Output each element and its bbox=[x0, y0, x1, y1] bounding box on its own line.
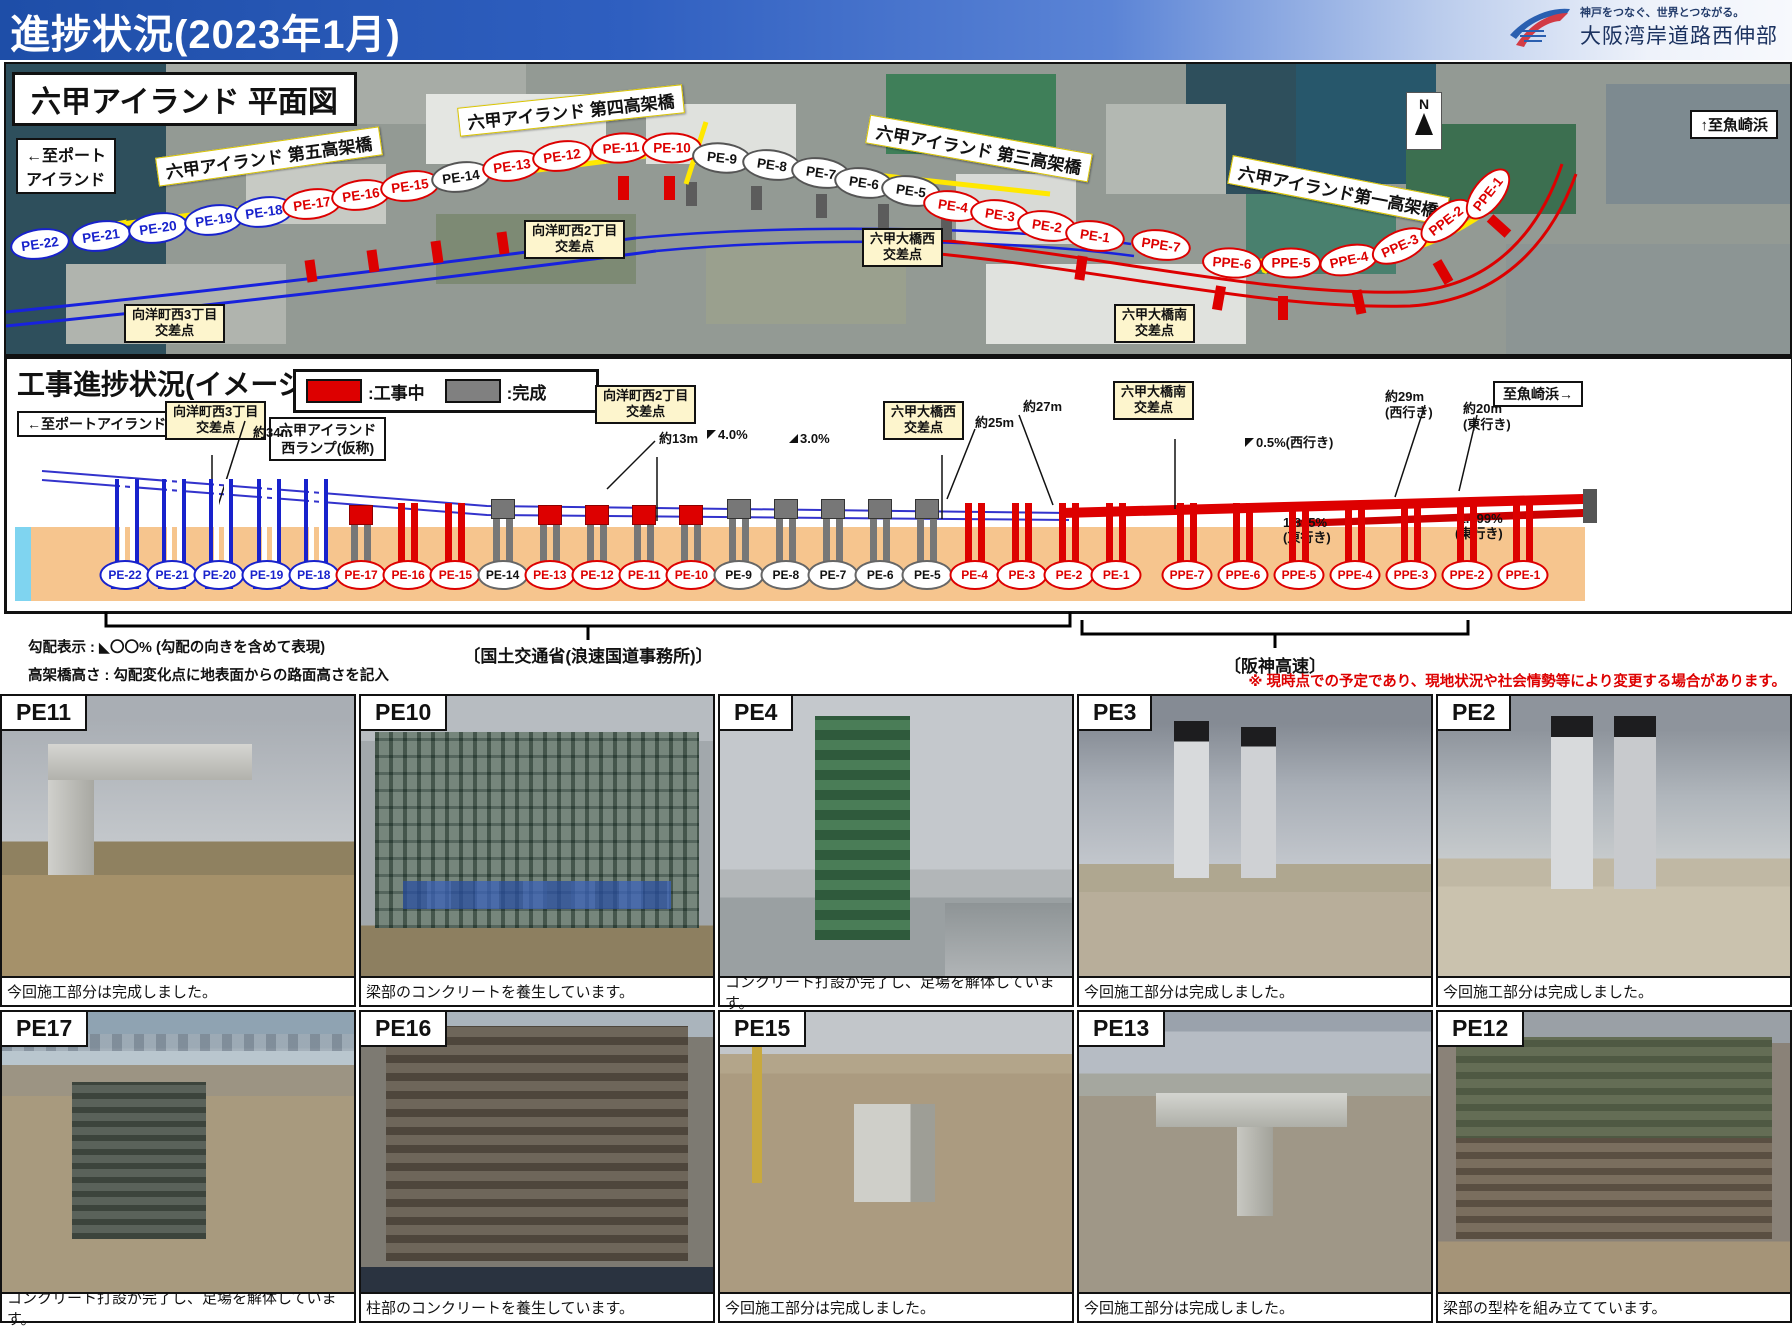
construction-photo bbox=[361, 696, 713, 976]
diagram-pier-label-pe-5: PE-5 bbox=[902, 560, 953, 590]
diagram-pier-label-pe-12: PE-12 bbox=[572, 560, 623, 590]
pier-cap bbox=[868, 499, 892, 519]
map-title: 六甲アイランド 平面図 bbox=[12, 72, 357, 126]
photo-pier-tag: PE11 bbox=[2, 696, 87, 731]
diagram-pier-label-pe-18: PE-18 bbox=[288, 560, 339, 590]
direction-to-uozakihama: ↑至魚崎浜 bbox=[1690, 110, 1778, 139]
photo-caption: 今回施工部分は完成しました。 bbox=[1438, 976, 1790, 1005]
photo-pier-tag: PE3 bbox=[1079, 696, 1152, 731]
photo-pier-tag: PE16 bbox=[361, 1012, 447, 1047]
diagram-pier-label-pe-15: PE-15 bbox=[430, 560, 481, 590]
diagram-pier-label-ppe-5: PPE-5 bbox=[1274, 560, 1325, 590]
direction-to-port-island: ←至ポート アイランド bbox=[16, 138, 116, 194]
diagram-pier-label-pe-10: PE-10 bbox=[666, 560, 717, 590]
diagram-pier-label-pe-3: PE-3 bbox=[996, 560, 1047, 590]
page-title: 進捗状況(2023年1月) bbox=[10, 2, 401, 60]
photo-caption: 今回施工部分は完成しました。 bbox=[1079, 1292, 1431, 1321]
diagram-pier-label-ppe-2: PPE-2 bbox=[1442, 560, 1493, 590]
photo-row-1: PE11今回施工部分は完成しました。PE10梁部のコンクリートを養生しています。… bbox=[0, 694, 1792, 1007]
pier-cap bbox=[632, 505, 656, 525]
disclaimer-text: ※ 現時点での予定であり、現地状況や社会情勢等により変更する場合があります。 bbox=[1248, 670, 1786, 691]
photo-pier-tag: PE4 bbox=[720, 696, 793, 731]
progress-report-page: { "header": { "title": "進捗状況(2023年1月)", … bbox=[0, 0, 1792, 1323]
note-height: 高架橋高さ : 勾配変化点に地表面からの路面高さを記入 bbox=[28, 664, 389, 685]
diagram-pier-label-pe-14: PE-14 bbox=[477, 560, 528, 590]
pier-cap bbox=[774, 499, 798, 519]
diagram-pier-label-pe-19: PE-19 bbox=[241, 560, 292, 590]
photo-caption: 梁部のコンクリートを養生しています。 bbox=[361, 976, 713, 1005]
logo-org-name: 大阪湾岸道路西伸部 bbox=[1580, 20, 1778, 50]
plan-view-map: 六甲アイランド 平面図 ←至ポート アイランド ↑至魚崎浜 N 六甲アイランド … bbox=[4, 62, 1792, 356]
pier-cap bbox=[679, 505, 703, 525]
logo-tagline: 神戸をつなぐ、世界とつながる。 bbox=[1580, 4, 1778, 20]
pier-cap bbox=[538, 505, 562, 525]
pier-cap bbox=[915, 499, 939, 519]
diagram-pier-label-ppe-3: PPE-3 bbox=[1386, 560, 1437, 590]
photo-pier-tag: PE2 bbox=[1438, 696, 1511, 731]
photo-panel-pe11: PE11今回施工部分は完成しました。 bbox=[0, 694, 356, 1007]
header-bar: 進捗状況(2023年1月) 神戸をつなぐ、世界とつながる。 大阪湾岸道路西伸部 bbox=[0, 0, 1792, 60]
diagram-pier-label-pe-17: PE-17 bbox=[336, 560, 387, 590]
photo-caption: 今回施工部分は完成しました。 bbox=[2, 976, 354, 1005]
intersection-label-rokko-ohashi-west: 六甲大橋西 交差点 bbox=[862, 228, 943, 267]
diagram-pier-label-pe-9: PE-9 bbox=[713, 560, 764, 590]
intersection-label-mukoyama2: 向洋町西2丁目 交差点 bbox=[524, 220, 625, 259]
diagram-pier-label-pe-7: PE-7 bbox=[808, 560, 859, 590]
photo-panel-pe3: PE3今回施工部分は完成しました。 bbox=[1077, 694, 1433, 1007]
construction-photo bbox=[720, 696, 1072, 976]
photo-caption: 今回施工部分は完成しました。 bbox=[720, 1292, 1072, 1321]
construction-photo bbox=[720, 1012, 1072, 1292]
note-grade: 勾配表示 : ◣〇〇% (勾配の向きを含めて表現) bbox=[28, 636, 325, 657]
photo-caption: 柱部のコンクリートを養生しています。 bbox=[361, 1292, 713, 1321]
photo-caption: コンクリート打設が完了し、足場を解体しています。 bbox=[2, 1292, 354, 1321]
construction-photo bbox=[2, 696, 354, 976]
diagram-annotations: 勾配表示 : ◣〇〇% (勾配の向きを含めて表現) 高架橋高さ : 勾配変化点に… bbox=[0, 608, 1792, 694]
photo-panel-pe2: PE2今回施工部分は完成しました。 bbox=[1436, 694, 1792, 1007]
diagram-pier-label-pe-2: PE-2 bbox=[1044, 560, 1095, 590]
pier-cap bbox=[821, 499, 845, 519]
diagram-pier-label-ppe-1: PPE-1 bbox=[1498, 560, 1549, 590]
diagram-pier-label-pe-16: PE-16 bbox=[383, 560, 434, 590]
photo-panel-pe4: PE4コンクリート打設が完了し、足場を解体しています。 bbox=[718, 694, 1074, 1007]
diagram-pier-label-pe-22: PE-22 bbox=[100, 560, 151, 590]
pier-status-strip: PE-22PE-21PE-20PE-19PE-18PE-17PE-16PE-15… bbox=[7, 359, 1787, 609]
org-logo: 神戸をつなぐ、世界とつながる。 大阪湾岸道路西伸部 bbox=[1508, 4, 1778, 50]
photo-row-2: PE17コンクリート打設が完了し、足場を解体しています。PE16柱部のコンクリー… bbox=[0, 1010, 1792, 1323]
photo-pier-tag: PE10 bbox=[361, 696, 447, 731]
intersection-label-mukoyama3: 向洋町西3丁目 交差点 bbox=[124, 304, 225, 343]
construction-photo bbox=[1438, 1012, 1790, 1292]
diagram-pier-label-pe-20: PE-20 bbox=[194, 560, 245, 590]
diagram-pier-label-pe-6: PE-6 bbox=[855, 560, 906, 590]
pier-cap bbox=[585, 505, 609, 525]
diagram-pier-label-pe-8: PE-8 bbox=[760, 560, 811, 590]
compass-needle-icon bbox=[1415, 113, 1433, 135]
photo-caption: コンクリート打設が完了し、足場を解体しています。 bbox=[720, 976, 1072, 1005]
logo-text: 神戸をつなぐ、世界とつながる。 大阪湾岸道路西伸部 bbox=[1580, 4, 1778, 50]
compass-north: N bbox=[1406, 92, 1442, 150]
diagram-pier-label-ppe-4: PPE-4 bbox=[1330, 560, 1381, 590]
diagram-pier-label-pe-13: PE-13 bbox=[524, 560, 575, 590]
photo-panel-pe15: PE15今回施工部分は完成しました。 bbox=[718, 1010, 1074, 1323]
pier-cap bbox=[491, 499, 515, 519]
agency-mlit: 〔国土交通省(浪速国道事務所)〕 bbox=[463, 642, 712, 667]
photo-pier-tag: PE15 bbox=[720, 1012, 806, 1047]
construction-photo bbox=[361, 1012, 713, 1292]
photo-pier-tag: PE13 bbox=[1079, 1012, 1165, 1047]
photo-panel-pe17: PE17コンクリート打設が完了し、足場を解体しています。 bbox=[0, 1010, 356, 1323]
pier-cap bbox=[727, 499, 751, 519]
diagram-pier-label-pe-21: PE-21 bbox=[147, 560, 198, 590]
photo-panel-pe13: PE13今回施工部分は完成しました。 bbox=[1077, 1010, 1433, 1323]
construction-photo bbox=[2, 1012, 354, 1292]
construction-photo bbox=[1079, 1012, 1431, 1292]
diagram-pier-label-ppe-7: PPE-7 bbox=[1162, 560, 1213, 590]
diagram-pier-label-pe-1: PE-1 bbox=[1091, 560, 1142, 590]
diagram-pier-label-ppe-6: PPE-6 bbox=[1218, 560, 1269, 590]
diagram-pier-label-pe-4: PE-4 bbox=[949, 560, 1000, 590]
photo-pier-tag: PE12 bbox=[1438, 1012, 1524, 1047]
intersection-label-rokko-ohashi-south: 六甲大橋南 交差点 bbox=[1114, 304, 1195, 343]
compass-label: N bbox=[1419, 96, 1429, 112]
photo-panel-pe16: PE16柱部のコンクリートを養生しています。 bbox=[359, 1010, 715, 1323]
construction-photo bbox=[1438, 696, 1790, 976]
progress-diagram: 工事進捗状況(イメージ図) :工事中 :完成 ←至ポートアイランド 至魚崎浜→ … bbox=[4, 356, 1792, 614]
photo-pier-tag: PE17 bbox=[2, 1012, 88, 1047]
pier-cap bbox=[349, 505, 373, 525]
photo-caption: 梁部の型枠を組み立てています。 bbox=[1438, 1292, 1790, 1321]
photo-panel-pe12: PE12梁部の型枠を組み立てています。 bbox=[1436, 1010, 1792, 1323]
construction-photo bbox=[1079, 696, 1431, 976]
photo-caption: 今回施工部分は完成しました。 bbox=[1079, 976, 1431, 1005]
logo-swoosh-icon bbox=[1508, 5, 1572, 49]
diagram-pier-label-pe-11: PE-11 bbox=[619, 560, 670, 590]
photo-panel-pe10: PE10梁部のコンクリートを養生しています。 bbox=[359, 694, 715, 1007]
